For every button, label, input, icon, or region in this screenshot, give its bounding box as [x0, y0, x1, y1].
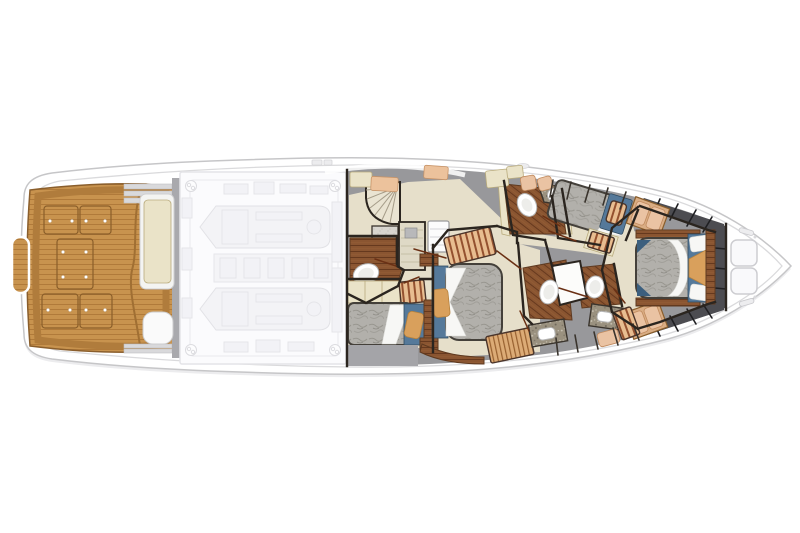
head2-sink — [597, 311, 613, 323]
yacht-deck-plan — [0, 0, 800, 533]
cushion-tan — [424, 165, 449, 180]
page — [0, 0, 800, 533]
cushion-tan — [371, 176, 399, 191]
gearbox-centerline-equipment — [214, 254, 332, 282]
headboard-shelf — [706, 230, 715, 304]
transom-door-step — [12, 237, 29, 293]
cabin-sole — [348, 345, 418, 366]
striped-cushion — [399, 280, 426, 304]
bow-hatch — [731, 240, 757, 266]
accent-pillow — [432, 288, 451, 318]
stool — [520, 175, 537, 191]
engine-starboard — [200, 288, 330, 330]
bulkhead-lockers — [715, 226, 726, 308]
nightstand-aft — [420, 254, 438, 266]
bow-hatch — [731, 268, 757, 294]
mezzanine-seat — [143, 312, 173, 344]
mezzanine-bench-cushion — [144, 200, 171, 283]
engine-port — [200, 206, 330, 248]
